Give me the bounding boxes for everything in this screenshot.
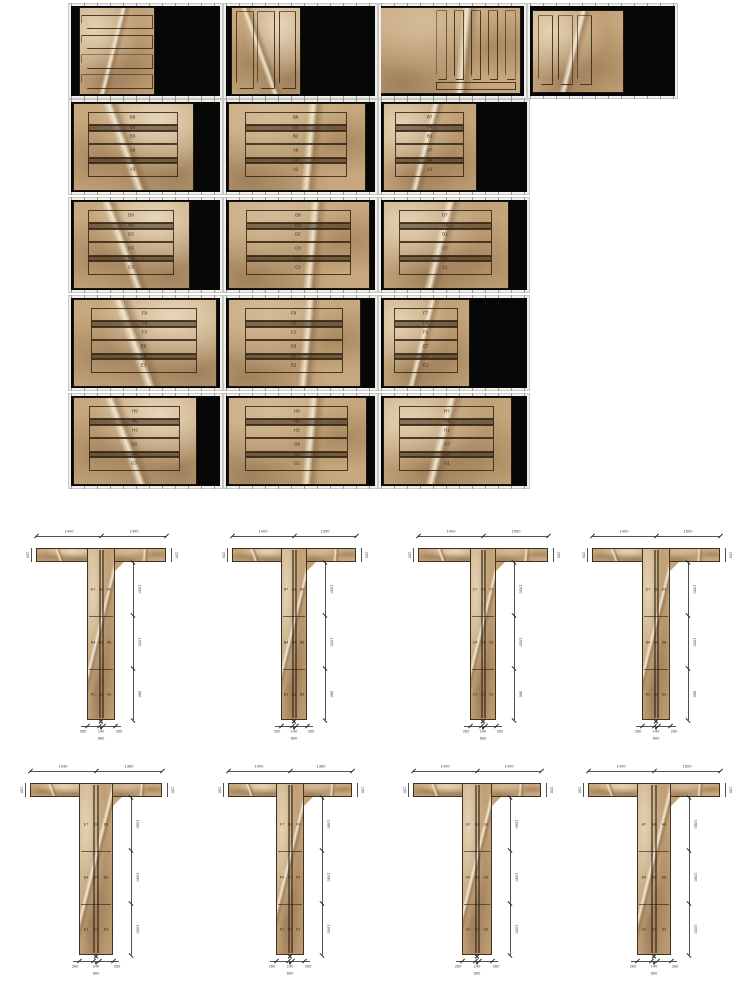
slab-sheet-background: H9H6H3G9G6G3 xyxy=(71,396,220,486)
segment-piece-label: G4 xyxy=(466,876,471,880)
dimension-line xyxy=(477,771,541,772)
segment-piece-label: A5 xyxy=(99,641,103,645)
flange-thickness-dimension: 150 xyxy=(221,552,225,559)
cut-strip-label: F2 xyxy=(291,331,296,335)
cut-strip-label: A9 xyxy=(130,149,135,153)
dimension-arrow: ▼ xyxy=(99,727,104,732)
stone-slab: F9F6F3E9E6E3 xyxy=(74,300,216,386)
dimension-line xyxy=(223,783,224,797)
segment-piece-label: G2 xyxy=(475,928,480,932)
segment-piece-label: D3 xyxy=(662,693,667,697)
cut-strip-label: B3 xyxy=(130,135,135,139)
slab-sheet-cell xyxy=(527,3,678,99)
segment-piece-label: D2 xyxy=(654,693,659,697)
flange-left-arm xyxy=(228,783,277,797)
dimension-line xyxy=(688,562,689,720)
cut-strip-label: G8 xyxy=(294,443,300,447)
cut-strip: C1 xyxy=(399,261,492,275)
stone-slab: B9B6B3A9A6A3 xyxy=(74,104,193,190)
total-width-dimension: 660 xyxy=(651,972,658,976)
dimension-arrow: ▼ xyxy=(94,962,99,967)
cut-strip-label: A5 xyxy=(293,159,298,163)
cut-strip: G1 xyxy=(399,457,494,471)
bottom-dimension: 260 xyxy=(635,730,642,734)
flange-thickness-dimension: 150 xyxy=(549,787,553,794)
flange-thickness-dimension: 150 xyxy=(728,552,732,559)
segment-piece-label: E9 xyxy=(104,823,108,827)
flange-left-arm xyxy=(36,548,88,562)
cut-strip-label: C3 xyxy=(128,266,134,270)
cut-strip xyxy=(236,11,254,89)
slab-sheet-background xyxy=(381,6,524,96)
cut-strip-label: G1 xyxy=(444,462,450,466)
cut-strip: H8 xyxy=(245,406,348,420)
segment-piece-label: E3 xyxy=(104,928,108,932)
slab-sheet-cell: F8F5F2E8E5E2 xyxy=(223,295,378,391)
cut-strip-label: A3 xyxy=(130,168,135,172)
left-arm-dimension: 1430 xyxy=(59,765,68,769)
column-stem: F7F8F9F4F5F6F1F2F3 xyxy=(276,783,304,955)
cut-strip xyxy=(558,15,573,85)
fillet-corner xyxy=(492,797,501,806)
cut-strip: B7 xyxy=(395,112,464,126)
cut-strip-label: H9 xyxy=(132,410,138,414)
segment-piece-label: A2 xyxy=(99,693,103,697)
slab-sheet-cell: H7H4H1G7G4G1 xyxy=(378,393,530,489)
segment-piece-label: A7 xyxy=(90,588,94,592)
cut-strip-label: C8 xyxy=(296,247,302,251)
segment-height-dimension: 1050 xyxy=(692,637,696,646)
segment-piece-label: B2 xyxy=(292,693,296,697)
cut-strip: F2 xyxy=(245,327,343,341)
dimension-line xyxy=(583,783,584,797)
flange-right-arm xyxy=(495,548,548,562)
segment-divider xyxy=(283,669,305,670)
cut-strip: H9 xyxy=(89,406,181,420)
cut-strip: C7 xyxy=(399,242,492,256)
segment-divider xyxy=(644,669,668,670)
dimension-line xyxy=(131,797,132,955)
segment-piece-label: G5 xyxy=(475,876,480,880)
cut-strip: B9 xyxy=(88,112,177,126)
cut-strip-label: F5 xyxy=(291,322,296,326)
cut-strip xyxy=(471,10,481,80)
cut-strip: C3 xyxy=(88,261,174,275)
segment-piece-label: H9 xyxy=(662,823,667,827)
cut-strip-label: G5 xyxy=(294,453,300,457)
dimension-arrow: ▼ xyxy=(652,962,657,967)
column-stem: G7G8G9G4G5G6G1G2G3 xyxy=(462,783,492,955)
segment-height-dimension: 1080 xyxy=(326,819,330,828)
bottom-dimension: 260 xyxy=(463,730,470,734)
dimension-tick xyxy=(539,769,544,774)
segment-piece-label: B9 xyxy=(299,588,303,592)
segment-piece-label: A9 xyxy=(107,588,111,592)
column-stem: A7A8A9A4A5A6A1A2A3 xyxy=(87,548,115,720)
cut-strip-label: F1 xyxy=(423,331,428,335)
cut-strip-label: H2 xyxy=(294,429,300,433)
cut-strip-label: H7 xyxy=(444,410,450,414)
segment-height-dimension: 980 xyxy=(692,691,696,698)
dimension-line xyxy=(171,548,172,562)
segment-piece-label: C3 xyxy=(488,693,493,697)
dimension-arrow: ▼ xyxy=(481,727,486,732)
stone-slab: F8F5F2E8E5E2 xyxy=(229,300,360,386)
segment-piece-label: E7 xyxy=(84,823,88,827)
bottom-dimension: 260 xyxy=(72,965,79,969)
stone-slab: B7B4B1A7A4A1 xyxy=(384,104,476,190)
cut-strip: E1 xyxy=(394,359,458,373)
cut-strip-label: E5 xyxy=(291,355,296,359)
fillet-corner xyxy=(113,797,122,806)
cut-strip: B2 xyxy=(245,131,347,145)
left-arm-dimension: 1400 xyxy=(620,530,629,534)
segment-divider xyxy=(639,851,669,852)
flange-thickness-dimension: 150 xyxy=(402,787,406,794)
slab-sheet-background: H8H5H2G8G5G2 xyxy=(226,396,375,486)
cut-strip-label: C2 xyxy=(296,266,302,270)
segment-piece-label: E8 xyxy=(94,823,98,827)
fillet-corner xyxy=(670,562,679,571)
cut-strip-label: E7 xyxy=(423,345,428,349)
cut-strip-label: B4 xyxy=(427,126,432,130)
segment-divider xyxy=(89,669,113,670)
slab-sheet-background: F7F4F1E7E4E1 xyxy=(381,298,527,388)
dimension-arrow: ▼ xyxy=(292,727,297,732)
dimension-arrow-cluster: ✕ xyxy=(287,953,293,960)
bottom-dimension: 260 xyxy=(116,730,123,734)
segment-height-dimension: 1000 xyxy=(693,925,697,934)
cut-strip xyxy=(81,74,153,89)
fillet-corner xyxy=(304,797,313,806)
fillet-corner xyxy=(496,562,505,571)
segment-piece-label: E6 xyxy=(104,876,108,880)
segment-height-dimension: 1080 xyxy=(514,872,518,881)
slab-sheet-background: B8B5B2A8A5A2 xyxy=(226,102,375,192)
cut-strip-label: C5 xyxy=(296,257,302,261)
bottom-dimension: 260 xyxy=(308,730,315,734)
slab-sheet-cell xyxy=(68,3,223,99)
cut-strip: F9 xyxy=(91,308,197,322)
dimension-line xyxy=(514,562,515,720)
segment-piece-label: B5 xyxy=(292,641,296,645)
dimension-arrow: ▼ xyxy=(475,962,480,967)
segment-divider xyxy=(89,616,113,617)
slab-sheet-cell: H9H6H3G9G6G3 xyxy=(68,393,223,489)
total-width-dimension: 660 xyxy=(287,972,294,976)
segment-height-dimension: 1000 xyxy=(326,925,330,934)
dimension-line xyxy=(357,783,358,797)
segment-piece-label: B8 xyxy=(292,588,296,592)
segment-height-dimension: 1050 xyxy=(329,637,333,646)
segment-piece-label: D1 xyxy=(645,693,650,697)
dimension-arrow-cluster: ✕ xyxy=(93,953,99,960)
cut-strip: D1 xyxy=(399,229,492,243)
dimension-line xyxy=(725,548,726,562)
fillet-corner xyxy=(307,562,316,571)
flange-left-arm xyxy=(30,783,80,797)
dimension-line xyxy=(25,783,26,797)
dimension-line xyxy=(325,562,326,720)
dimension-line xyxy=(418,536,483,537)
slab-sheet-cell: F9F6F3E9E6E3 xyxy=(68,295,223,391)
segment-divider xyxy=(472,669,494,670)
stone-slab: F7F4F1E7E4E1 xyxy=(384,300,469,386)
left-arm-dimension: 1400 xyxy=(259,530,268,534)
segment-piece-label: F5 xyxy=(288,876,292,880)
segment-piece-label: H7 xyxy=(641,823,646,827)
segment-piece-label: G1 xyxy=(466,928,471,932)
tee-column-elevation: 14001500150150H7H8H9H4H5H6H1H2H310801080… xyxy=(588,763,720,978)
cut-strip xyxy=(279,11,297,89)
stone-slab xyxy=(80,8,155,94)
flange-thickness-dimension: 150 xyxy=(556,552,560,559)
segment-piece-label: D8 xyxy=(654,588,659,592)
segment-piece-label: A8 xyxy=(99,588,103,592)
cut-strip-label: F6 xyxy=(141,322,146,326)
cut-strip: E8 xyxy=(245,340,343,354)
cut-strip xyxy=(436,82,515,90)
segment-piece-label: F9 xyxy=(296,823,300,827)
slab-sheet-background: H7H4H1G7G4G1 xyxy=(381,396,527,486)
cut-strip: H3 xyxy=(89,425,181,439)
stone-slab: H8H5H2G8G5G2 xyxy=(229,398,366,484)
segment-piece-label: D5 xyxy=(654,641,659,645)
cut-strip xyxy=(505,10,515,80)
cut-strip-label: B5 xyxy=(293,126,298,130)
cut-strip-label: H4 xyxy=(444,420,450,424)
total-width-dimension: 660 xyxy=(98,737,105,741)
cut-strip xyxy=(81,35,153,50)
segment-piece-label: C8 xyxy=(481,588,486,592)
cut-strip: F7 xyxy=(394,308,458,322)
dimension-line xyxy=(725,783,726,797)
left-arm-dimension: 1400 xyxy=(64,530,73,534)
flange-left-arm xyxy=(418,548,471,562)
stone-slab xyxy=(533,11,623,92)
cut-strip-label: D6 xyxy=(128,224,134,228)
segment-height-dimension: 1050 xyxy=(518,637,522,646)
bottom-dimension: 260 xyxy=(493,965,500,969)
segment-piece-label: E5 xyxy=(94,876,98,880)
cut-strip: C2 xyxy=(246,261,351,275)
segment-piece-label: G6 xyxy=(484,876,489,880)
segment-piece-label: C1 xyxy=(473,693,478,697)
segment-piece-label: F7 xyxy=(280,823,284,827)
dimension-line xyxy=(413,548,414,562)
segment-divider xyxy=(81,904,111,905)
cut-strip: A8 xyxy=(245,144,347,158)
cut-strip-label: A8 xyxy=(293,149,298,153)
segment-piece-label: H5 xyxy=(652,876,657,880)
right-arm-dimension: 1500 xyxy=(511,530,520,534)
bottom-dimension: 260 xyxy=(269,965,276,969)
dimension-arrow-cluster: ✕ xyxy=(480,718,486,725)
flange-left-arm xyxy=(232,548,282,562)
dimension-tick xyxy=(718,534,723,539)
total-width-dimension: 660 xyxy=(291,737,298,741)
cut-strip-label: C6 xyxy=(128,257,134,261)
cut-strip xyxy=(81,54,153,69)
flange-right-arm xyxy=(306,548,356,562)
slab-sheet-background: B7B4B1A7A4A1 xyxy=(381,102,527,192)
dimension-arrow-cluster: ✕ xyxy=(291,718,297,725)
segment-height-dimension: 1050 xyxy=(137,637,141,646)
cut-strip: G2 xyxy=(245,457,348,471)
segment-piece-label: C5 xyxy=(481,641,486,645)
cut-strip-label: E6 xyxy=(141,355,146,359)
slab-sheet-cell xyxy=(223,3,378,99)
cut-strip-label: B9 xyxy=(130,116,135,120)
segment-divider xyxy=(464,851,490,852)
flange-thickness-dimension: 150 xyxy=(577,787,581,794)
cut-strip: B1 xyxy=(395,131,464,145)
segment-height-dimension: 980 xyxy=(518,691,522,698)
cut-strip-label: B6 xyxy=(130,126,135,130)
segment-height-dimension: 1080 xyxy=(135,872,139,881)
flange-thickness-dimension: 150 xyxy=(217,787,221,794)
segment-divider xyxy=(81,851,111,852)
bottom-dimension: 260 xyxy=(630,965,637,969)
segment-height-dimension: 1080 xyxy=(693,819,697,828)
slab-sheet-cell: B7B4B1A7A4A1 xyxy=(378,99,530,195)
cut-strip-label: C1 xyxy=(443,266,449,270)
dimension-line xyxy=(483,536,548,537)
flange-right-arm xyxy=(303,783,352,797)
cut-strip xyxy=(436,10,446,80)
right-arm-dimension: 1500 xyxy=(684,530,693,534)
segment-divider xyxy=(472,616,494,617)
dimension-line xyxy=(232,536,294,537)
cut-strip-label: D9 xyxy=(128,214,134,218)
dimension-arrow-cluster: ✕ xyxy=(651,953,657,960)
cut-strip-label: B1 xyxy=(427,135,432,139)
left-arm-dimension: 1400 xyxy=(255,765,264,769)
segment-piece-label: G9 xyxy=(484,823,489,827)
cut-strip xyxy=(488,10,498,80)
segment-piece-label: D4 xyxy=(645,641,650,645)
segment-piece-label: A4 xyxy=(90,641,94,645)
dimension-line xyxy=(133,562,134,720)
segment-piece-label: H8 xyxy=(652,823,657,827)
flange-thickness-dimension: 150 xyxy=(407,552,411,559)
cut-strip: D8 xyxy=(246,210,351,224)
cut-strip: D3 xyxy=(88,229,174,243)
column-stem: E7E8E9E4E5E6E1E2E3 xyxy=(79,783,113,955)
flange-thickness-dimension: 150 xyxy=(174,552,178,559)
tee-column-elevation: 14001500150150D7D8D9D4D5D6D1D2D310501050… xyxy=(592,528,720,743)
cut-strip: F1 xyxy=(394,327,458,341)
cut-strip-label: D3 xyxy=(128,233,134,237)
cut-strip-label: H5 xyxy=(294,420,300,424)
segment-piece-label: H4 xyxy=(641,876,646,880)
cut-strip: D9 xyxy=(88,210,174,224)
right-arm-dimension: 1500 xyxy=(683,765,692,769)
segment-piece-label: F6 xyxy=(296,876,300,880)
dimension-line xyxy=(31,548,32,562)
segment-height-dimension: 1080 xyxy=(693,872,697,881)
cut-strip-label: H1 xyxy=(444,429,450,433)
cut-strip: B3 xyxy=(88,131,177,145)
drawing-sheet: B9B6B3A9A6A3B8B5B2A8A5A2B7B4B1A7A4A1D9D6… xyxy=(0,0,750,1000)
dimension-tick xyxy=(164,534,169,539)
slab-sheet-cell: D9D6D3C9C6C3 xyxy=(68,197,223,293)
segment-height-dimension: 980 xyxy=(137,691,141,698)
cut-strip-label: E3 xyxy=(141,364,146,368)
segment-piece-label: G3 xyxy=(484,928,489,932)
cut-strip-label: D5 xyxy=(296,224,302,228)
cut-strip: A9 xyxy=(88,144,177,158)
segment-height-dimension: 1000 xyxy=(135,925,139,934)
cut-strip-label: A7 xyxy=(427,149,432,153)
flange-left-arm xyxy=(588,783,638,797)
cut-strip xyxy=(81,15,153,30)
column-stem: H7H8H9H4H5H6H1H2H3 xyxy=(637,783,671,955)
dimension-line xyxy=(592,536,656,537)
bottom-dimension: 260 xyxy=(497,730,504,734)
dimension-line xyxy=(413,771,477,772)
slab-sheet-cell: D8D5D2C8C5C2 xyxy=(223,197,378,293)
dimension-tick xyxy=(160,769,165,774)
cut-strip: G9 xyxy=(89,438,181,452)
column-stem: D7D8D9D4D5D6D1D2D3 xyxy=(642,548,670,720)
stone-slab: B8B5B2A8A5A2 xyxy=(229,104,365,190)
slab-sheet-cell: D7D4D1C7C4C1 xyxy=(378,197,530,293)
cut-strip-label: G2 xyxy=(294,462,300,466)
dimension-line xyxy=(361,548,362,562)
total-width-dimension: 660 xyxy=(653,737,660,741)
right-arm-dimension: 1400 xyxy=(505,765,514,769)
segment-piece-label: C9 xyxy=(488,588,493,592)
segment-piece-label: B1 xyxy=(284,693,288,697)
bottom-dimension: 260 xyxy=(671,730,678,734)
cut-strip: G8 xyxy=(245,438,348,452)
cut-strip-label: E9 xyxy=(141,345,146,349)
cut-strip-label: G7 xyxy=(444,443,450,447)
cut-strip-label: F3 xyxy=(141,331,146,335)
cut-strip-label: E8 xyxy=(291,345,296,349)
dimension-line xyxy=(587,548,588,562)
segment-piece-label: E1 xyxy=(84,928,88,932)
dimension-tick xyxy=(718,769,723,774)
segment-piece-label: D9 xyxy=(662,588,667,592)
dimension-line xyxy=(228,771,290,772)
flange-thickness-dimension: 150 xyxy=(170,787,174,794)
segment-divider xyxy=(278,904,302,905)
segment-piece-label: C7 xyxy=(473,588,478,592)
slab-sheet-background: F8F5F2E8E5E2 xyxy=(226,298,375,388)
stone-slab: D9D6D3C9C6C3 xyxy=(74,202,189,288)
cut-strip: A7 xyxy=(395,144,464,158)
cut-strip: B8 xyxy=(245,112,347,126)
slab-sheet-cell: B8B5B2A8A5A2 xyxy=(223,99,378,195)
slab-sheet-background: D9D6D3C9C6C3 xyxy=(71,200,220,290)
segment-piece-label: A3 xyxy=(107,693,111,697)
dimension-arrow: ▼ xyxy=(288,962,293,967)
cut-strip: A2 xyxy=(245,163,347,177)
dimension-line xyxy=(510,797,511,955)
dimension-line xyxy=(290,771,352,772)
cut-strip: D7 xyxy=(399,210,492,224)
slab-sheet-background: D7D4D1C7C4C1 xyxy=(381,200,527,290)
dimension-arrow-cluster: ✕ xyxy=(653,718,659,725)
slab-sheet-background xyxy=(71,6,220,96)
cut-strip: H2 xyxy=(245,425,348,439)
segment-height-dimension: 1050 xyxy=(329,584,333,593)
flange-right-arm xyxy=(669,548,720,562)
left-arm-dimension: 1400 xyxy=(441,765,450,769)
flange-left-arm xyxy=(592,548,643,562)
